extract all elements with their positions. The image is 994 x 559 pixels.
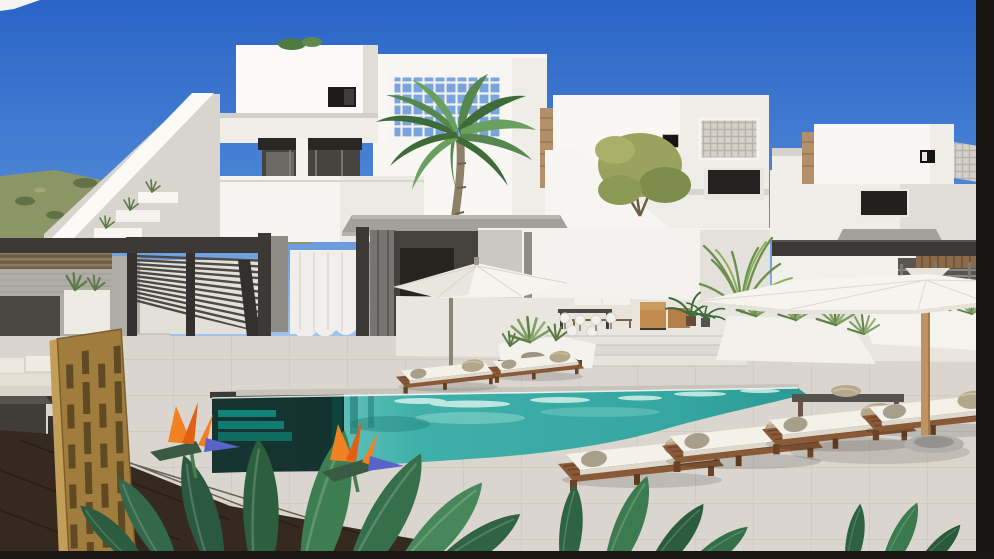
- villa-render-image: [0, 0, 994, 559]
- awning-window: [708, 170, 760, 194]
- pool-steps: [218, 410, 276, 417]
- dining-table: [558, 309, 612, 313]
- right-frame-bar: [976, 0, 994, 559]
- bottom-frame-bar: [0, 551, 994, 559]
- planter: [64, 290, 110, 334]
- window: [860, 190, 908, 216]
